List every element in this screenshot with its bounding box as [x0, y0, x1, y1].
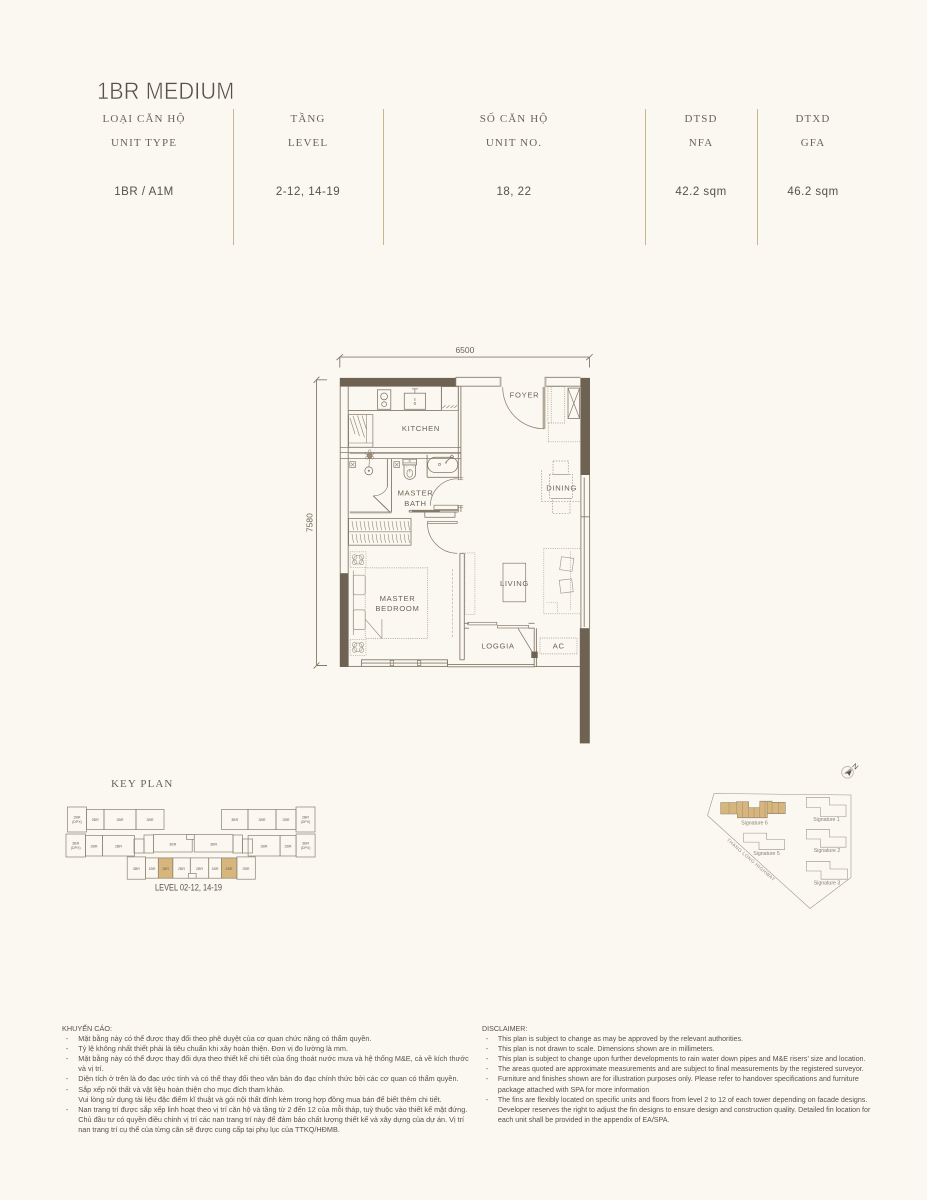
svg-text:(DPX): (DPX) [301, 846, 311, 850]
svg-text:7580: 7580 [305, 513, 315, 532]
svg-text:3BR: 3BR [210, 843, 217, 847]
svg-text:6500: 6500 [455, 345, 474, 355]
svg-text:MASTER: MASTER [398, 489, 434, 498]
svg-text:THANG LONG HIGHWAY: THANG LONG HIGHWAY [725, 837, 777, 883]
svg-text:BATH: BATH [404, 499, 427, 508]
svg-text:Signature 1: Signature 1 [813, 817, 840, 823]
svg-text:(DPX): (DPX) [71, 846, 81, 850]
svg-text:3BR: 3BR [147, 818, 154, 822]
svg-text:3BR: 3BR [133, 867, 140, 871]
svg-text:2BR: 2BR [196, 867, 203, 871]
svg-text:Signature 6: Signature 6 [741, 821, 768, 827]
svg-text:1BR: 1BR [162, 867, 169, 871]
svg-text:LIVING: LIVING [500, 579, 529, 588]
svg-text:2BR: 2BR [243, 867, 250, 871]
svg-text:3BR: 3BR [231, 818, 238, 822]
svg-text:KITCHEN: KITCHEN [402, 424, 440, 433]
svg-text:Signature 2: Signature 2 [814, 848, 841, 854]
svg-text:3BR: 3BR [117, 818, 124, 822]
svg-text:2BR: 2BR [285, 845, 292, 849]
svg-text:AC: AC [553, 642, 565, 651]
svg-text:FOYER: FOYER [510, 390, 540, 399]
svg-text:Signature 5: Signature 5 [753, 851, 780, 857]
svg-text:3BR: 3BR [259, 818, 266, 822]
svg-text:2BR: 2BR [74, 816, 81, 820]
svg-text:1BR: 1BR [212, 867, 219, 871]
svg-text:3BR: 3BR [302, 842, 309, 846]
svg-text:2BR: 2BR [178, 867, 185, 871]
svg-text:2BR: 2BR [91, 845, 98, 849]
svg-text:3BR: 3BR [72, 842, 79, 846]
svg-text:2BR: 2BR [302, 816, 309, 820]
svg-text:BEDROOM: BEDROOM [375, 604, 419, 613]
svg-text:1BR: 1BR [226, 867, 233, 871]
svg-text:DINING: DINING [546, 483, 577, 492]
svg-text:2BR: 2BR [92, 818, 99, 822]
svg-text:3BR: 3BR [169, 843, 176, 847]
svg-text:MASTER: MASTER [380, 594, 416, 603]
svg-text:2BR: 2BR [115, 845, 122, 849]
svg-text:N: N [850, 761, 860, 771]
svg-text:KEY PLAN: KEY PLAN [111, 778, 173, 790]
svg-text:Signature 3: Signature 3 [814, 881, 841, 887]
svg-text:2BR: 2BR [283, 818, 290, 822]
svg-text:LOGGIA: LOGGIA [481, 642, 515, 651]
svg-text:(DPX): (DPX) [301, 820, 311, 824]
svg-text:(DPX): (DPX) [72, 820, 82, 824]
svg-text:3BR: 3BR [261, 845, 268, 849]
svg-text:1BR: 1BR [149, 867, 156, 871]
svg-text:LEVEL 02-12, 14-19: LEVEL 02-12, 14-19 [155, 883, 222, 893]
